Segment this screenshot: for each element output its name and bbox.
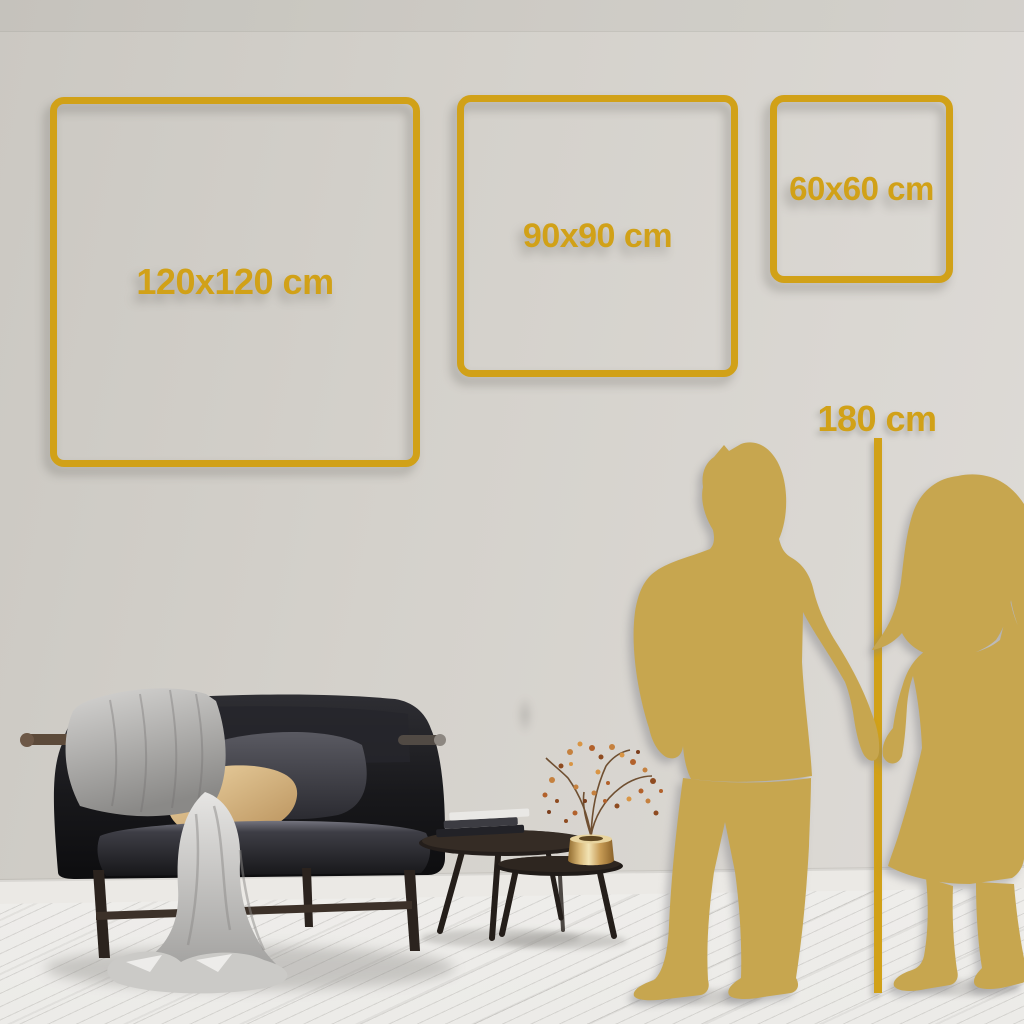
woman-silhouette <box>872 474 1024 991</box>
wall-art-size-guide: 120x120 cm 90x90 cm 60x60 cm <box>0 0 1024 1024</box>
couple-silhouettes <box>0 0 1024 1024</box>
man-silhouette <box>634 442 880 1000</box>
